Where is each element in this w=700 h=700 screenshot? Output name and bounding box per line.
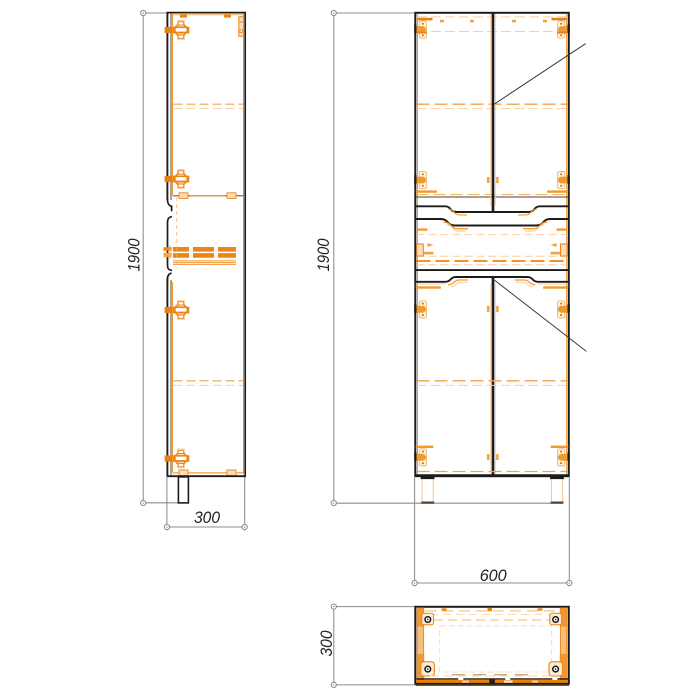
svg-text:1900: 1900 <box>126 238 144 272</box>
svg-text:300: 300 <box>194 509 221 527</box>
svg-text:600: 600 <box>480 567 508 585</box>
svg-text:300: 300 <box>318 630 336 657</box>
svg-text:1900: 1900 <box>315 238 333 272</box>
